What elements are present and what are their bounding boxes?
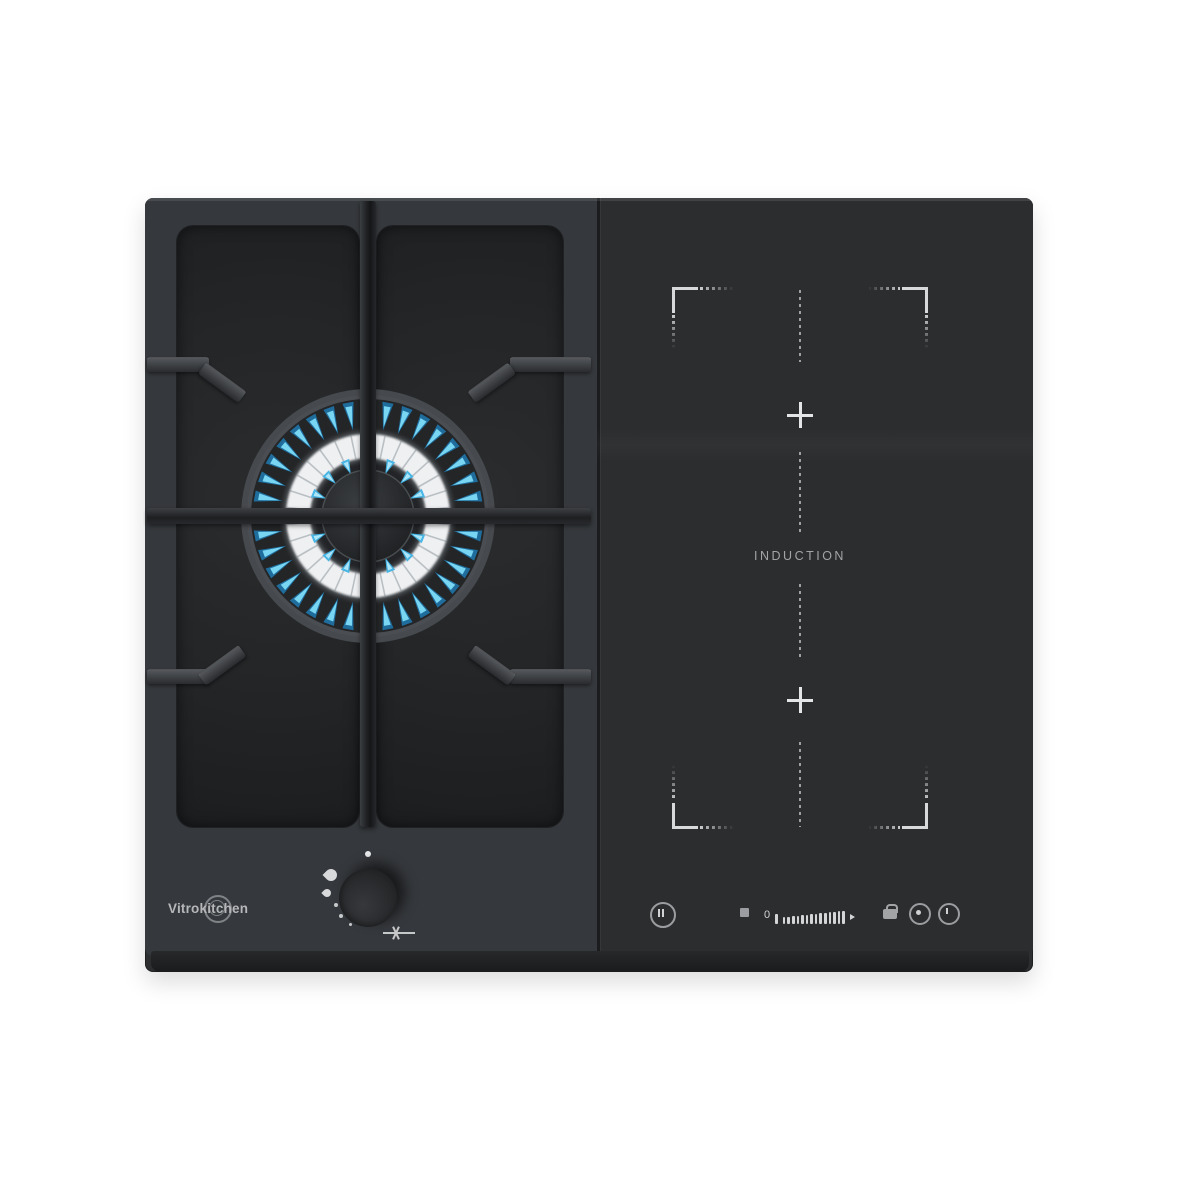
zone-corner-bracket-bottom-left (672, 765, 734, 829)
ignition-spark-icon (379, 924, 419, 942)
glass-reflection (597, 428, 1033, 462)
pan-support-bar-horizontal (147, 508, 591, 524)
zone-center-plus-mark-bottom (787, 687, 813, 713)
zone-divider-dashed-line (799, 290, 801, 362)
brand-name: Vitrokitchen (168, 901, 248, 916)
knob-off-position-dot (365, 851, 371, 857)
knob-level-dot (349, 923, 352, 926)
pan-support-hook-upper-right (510, 357, 591, 372)
zone-corner-bracket-top-left (672, 287, 734, 351)
power-level-slider[interactable]: 0 (764, 900, 855, 924)
slider-bars[interactable] (783, 911, 845, 925)
product-photo-hybrid-hob: INDUCTION Vitrokitchen 0 (0, 0, 1200, 1200)
power-icon[interactable] (938, 903, 960, 925)
slider-arrow-icon (850, 914, 855, 920)
zone-divider-dashed-line (799, 742, 801, 827)
knob-level-dot (334, 903, 338, 907)
slider-level-bar[interactable] (842, 911, 845, 925)
brand-logo: Vitrokitchen (168, 898, 298, 924)
zone-divider-dashed-line (799, 452, 801, 532)
slider-level-bar[interactable] (806, 915, 809, 925)
slider-level-bar[interactable] (833, 912, 836, 925)
slider-level-bar[interactable] (829, 912, 832, 924)
slider-level-bar[interactable] (824, 913, 827, 925)
slider-level-bar[interactable] (810, 914, 813, 924)
lock-icon[interactable] (883, 904, 899, 920)
slider-level-bar[interactable] (801, 915, 804, 924)
slider-level-bar[interactable] (815, 914, 818, 925)
slider-level-bar[interactable] (797, 916, 800, 925)
slider-level-bar[interactable] (838, 911, 841, 924)
zone-corner-bracket-top-right (866, 287, 928, 351)
slider-min-label: 0 (764, 910, 770, 921)
zone-center-plus-mark-top (787, 402, 813, 428)
knob-level-dot (339, 914, 343, 918)
slider-zero-tick (775, 914, 778, 924)
top-edge-highlight (146, 198, 1032, 201)
timer-icon[interactable] (909, 903, 931, 925)
pan-support-hook-lower-right (510, 669, 591, 684)
slider-level-bar[interactable] (787, 917, 790, 925)
slider-level-bar[interactable] (819, 913, 822, 924)
stop-square-icon[interactable] (740, 908, 749, 917)
gas-control-knob[interactable] (339, 869, 397, 927)
pause-icon[interactable] (650, 902, 676, 928)
zone-divider-dashed-line (799, 584, 801, 660)
induction-glass-surface (597, 198, 1033, 956)
slider-level-bar[interactable] (792, 916, 795, 924)
slider-level-bar[interactable] (783, 917, 786, 924)
induction-label: INDUCTION (700, 549, 900, 563)
cooktop-front-edge (151, 951, 1029, 972)
zone-corner-bracket-bottom-right (866, 765, 928, 829)
